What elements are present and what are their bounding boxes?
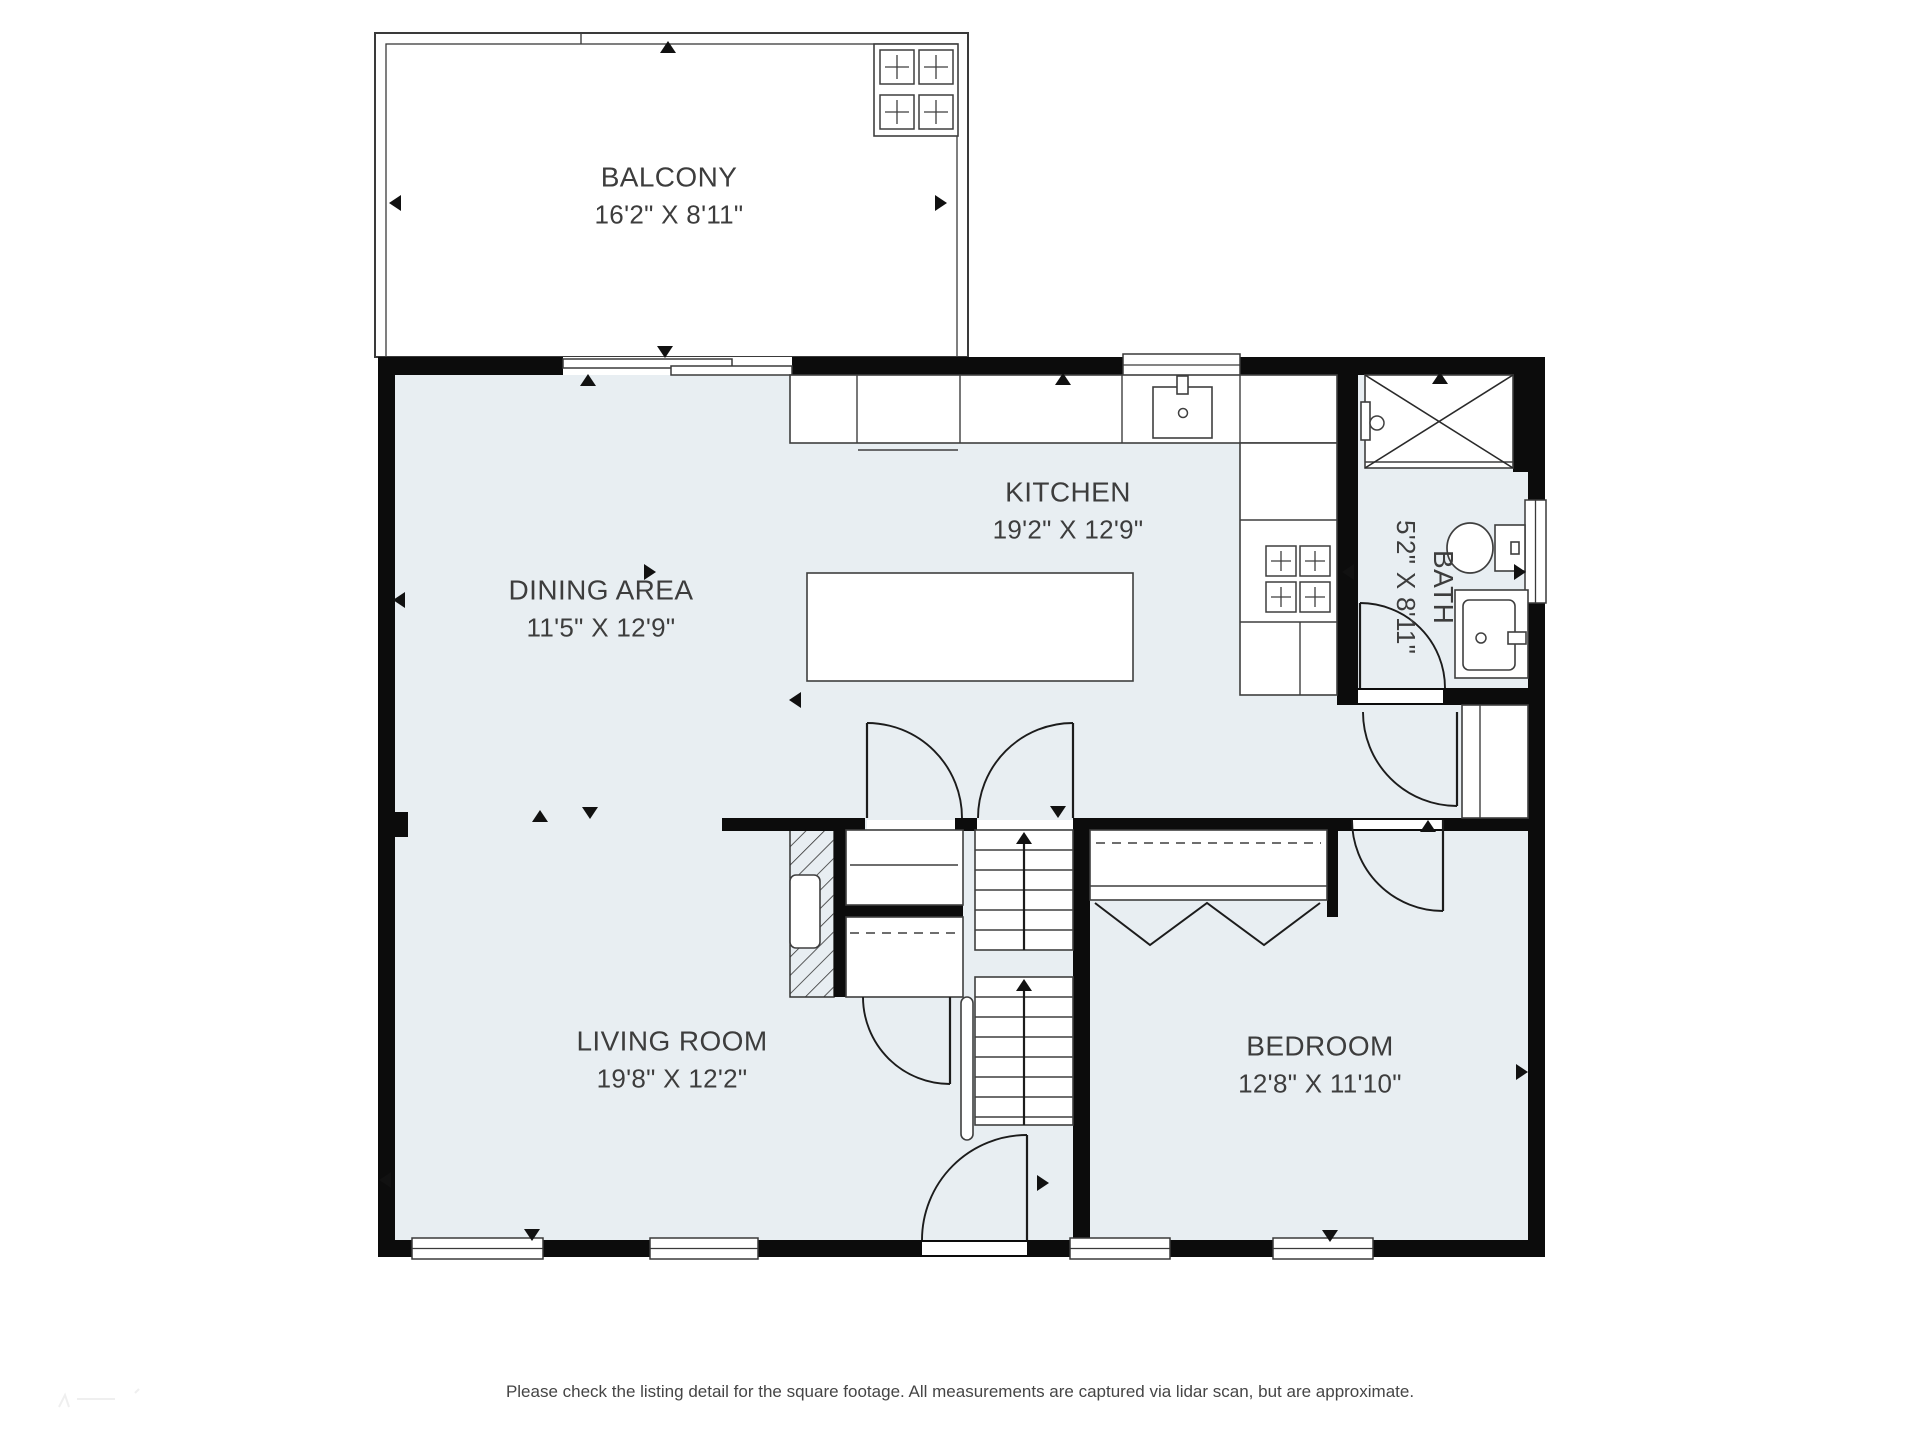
floorplan-page: BALCONY 16'2" X 8'11" KITCHEN 19'2" X 12… (0, 0, 1920, 1440)
fixture-circle (1179, 409, 1188, 418)
room-label-bedroom: BEDROOM 12'8" X 11'10" (1238, 1031, 1402, 1100)
room-dims: 11'5" X 12'9" (509, 613, 694, 644)
room-label-dining: DINING AREA 11'5" X 12'9" (509, 575, 694, 644)
fixture (1511, 542, 1519, 554)
room-label-balcony: BALCONY 16'2" X 8'11" (595, 162, 744, 231)
wall (846, 905, 963, 917)
fixture (1462, 705, 1528, 818)
floorplan-drawing (0, 0, 1920, 1440)
room-dims: 16'2" X 8'11" (595, 200, 744, 231)
fixture (1463, 600, 1515, 670)
fixture-circle (1476, 633, 1486, 643)
wall (1528, 357, 1545, 1257)
sliding-door-panel (671, 366, 792, 375)
room-name: DINING AREA (509, 575, 694, 607)
wall (378, 812, 408, 837)
door-opening (922, 1242, 1027, 1255)
wall (1077, 818, 1545, 831)
fixture (1495, 525, 1525, 571)
door-opening (977, 820, 1073, 829)
wall (1337, 357, 1358, 705)
fixture (846, 917, 963, 997)
wall (1513, 357, 1545, 472)
fixture (961, 997, 973, 1140)
disclaimer-text: Please check the listing detail for the … (0, 1382, 1920, 1402)
fixture (1508, 632, 1526, 644)
room-dims: 5'2" X 8'11" (1390, 492, 1421, 682)
fixture (807, 573, 1133, 681)
wall (378, 357, 1545, 375)
wall (1073, 818, 1090, 1240)
room-name: KITCHEN (993, 477, 1144, 509)
room-label-bath: BATH 5'2" X 8'11" (1390, 492, 1459, 682)
room-name: LIVING ROOM (576, 1026, 767, 1058)
fixture-circle (1370, 416, 1384, 430)
fixture (790, 375, 1337, 443)
room-dims: 19'2" X 12'9" (993, 515, 1144, 546)
wall (955, 818, 977, 831)
fixture (846, 830, 963, 905)
measure-marker (660, 41, 676, 53)
measure-marker (389, 195, 401, 211)
room-dims: 19'8" X 12'2" (576, 1064, 767, 1095)
room-label-living: LIVING ROOM 19'8" X 12'2" (576, 1026, 767, 1095)
door-opening (867, 820, 955, 829)
door-opening (1358, 690, 1443, 703)
wall (378, 357, 395, 1257)
wall (1327, 830, 1338, 917)
wall (722, 818, 865, 831)
fixture (790, 875, 820, 948)
measure-marker (935, 195, 947, 211)
room-label-kitchen: KITCHEN 19'2" X 12'9" (993, 477, 1144, 546)
fixture (1090, 830, 1327, 900)
wall (834, 830, 846, 997)
room-dims: 12'8" X 11'10" (1238, 1069, 1402, 1100)
room-name: BATH (1427, 492, 1459, 682)
watermark (55, 1385, 165, 1419)
fixture (1361, 402, 1370, 440)
fixture (1177, 376, 1188, 394)
room-name: BEDROOM (1238, 1031, 1402, 1063)
room-name: BALCONY (595, 162, 744, 194)
